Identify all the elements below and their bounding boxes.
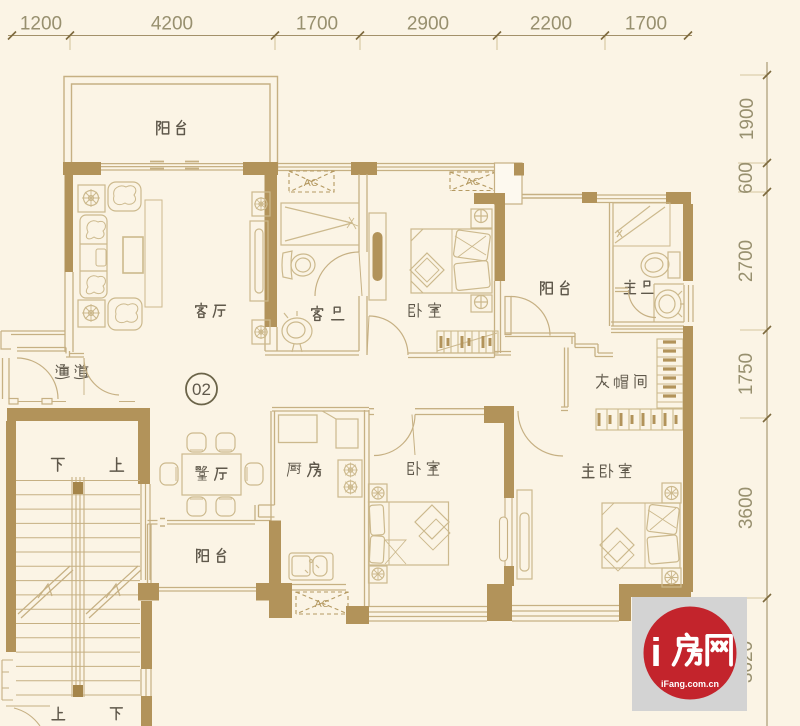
svg-text:2700: 2700: [736, 240, 757, 282]
svg-text:1700: 1700: [296, 14, 338, 35]
svg-text:1200: 1200: [20, 14, 62, 35]
svg-text:2200: 2200: [530, 14, 572, 35]
svg-text:2900: 2900: [407, 14, 449, 35]
svg-text:1700: 1700: [625, 14, 667, 35]
svg-text:1750: 1750: [736, 353, 757, 395]
svg-text:02: 02: [192, 380, 211, 399]
svg-text:1900: 1900: [737, 98, 758, 140]
svg-text:600: 600: [736, 162, 757, 194]
svg-text:i: i: [650, 631, 661, 675]
svg-text:iFang.com.cn: iFang.com.cn: [661, 679, 719, 689]
svg-text:AC: AC: [315, 598, 330, 610]
svg-text:AC: AC: [466, 177, 480, 188]
svg-text:AC: AC: [304, 177, 319, 189]
svg-text:4200: 4200: [151, 14, 193, 35]
svg-text:3600: 3600: [736, 487, 757, 529]
